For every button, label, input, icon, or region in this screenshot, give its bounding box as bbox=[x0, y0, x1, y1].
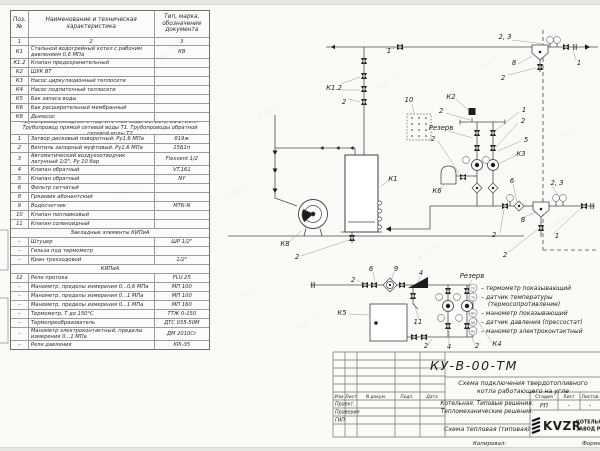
flow-arrow-icon bbox=[273, 151, 278, 156]
instrument-bubble-icon bbox=[554, 37, 561, 44]
control-cabinet-icon bbox=[469, 108, 476, 115]
diagram-label: 2 bbox=[521, 117, 525, 125]
valve-icon bbox=[460, 174, 466, 180]
sheet-frame bbox=[0, 230, 8, 343]
title-block-text: N докум. bbox=[366, 394, 386, 400]
flow-arrow-icon bbox=[386, 226, 391, 232]
watermark-text: kvzr.ru bbox=[87, 142, 111, 162]
diagram-label: Резерв bbox=[429, 124, 453, 132]
diagram-label: 1 bbox=[555, 232, 559, 240]
legend-bubble-code: ТЕ bbox=[470, 295, 475, 299]
diagram-label: 8 bbox=[512, 59, 517, 67]
title-block-text: КУ-В-00-ТМ bbox=[430, 358, 518, 373]
title-block-text: ГИП bbox=[335, 418, 345, 424]
title-block-text: Изм bbox=[335, 394, 345, 400]
watermark-text: kvzr.ru bbox=[167, 282, 191, 302]
diagram-label: 1 bbox=[577, 59, 581, 67]
title-block: КУ-В-00-ТМСхема подключения твердотоплив… bbox=[333, 352, 600, 447]
diagram-label: Резерв bbox=[460, 272, 484, 280]
title-block-text: Схема тепловая (типовая) bbox=[444, 426, 530, 433]
title-block-text: Стадия bbox=[535, 394, 553, 400]
diagram-label: 10 bbox=[405, 96, 414, 104]
legend-item-text: – термометр показывающий bbox=[481, 285, 571, 292]
diagram-label: 2 bbox=[342, 98, 346, 106]
legend-bubble-code: ДД bbox=[471, 320, 476, 324]
diagram-label: 1 bbox=[522, 106, 526, 114]
diagram-label: К4 bbox=[492, 340, 501, 348]
diagram-label: 2 bbox=[439, 107, 443, 115]
title-block-text: Подп. bbox=[400, 394, 413, 400]
diagram-label: 2 bbox=[351, 276, 355, 284]
diagram-label: К2 bbox=[446, 93, 455, 101]
title-block-text: Тепломеханические решения. bbox=[441, 409, 534, 415]
flow-arrow-icon bbox=[336, 146, 340, 150]
title-block-text: Котельная. Типовые решения. bbox=[440, 401, 533, 407]
title-block-text: Лист bbox=[344, 394, 357, 400]
legend-item-text2: (термосопротивление) bbox=[488, 301, 560, 308]
title-block-text: - bbox=[568, 403, 570, 410]
watermark-text: kvzr.ru bbox=[157, 42, 181, 62]
watermark-text: kvzr.ru bbox=[377, 72, 401, 92]
watermark-text: kvzr.ru bbox=[117, 182, 141, 202]
flow-arrow-icon bbox=[320, 146, 324, 150]
title-block-text: Дата bbox=[425, 394, 438, 400]
diagram-label: 2 bbox=[424, 342, 428, 350]
title-block-text: Проект. bbox=[335, 402, 355, 408]
title-block-text: котла работающего на угле bbox=[477, 387, 569, 395]
instrument-bubble-icon bbox=[438, 315, 445, 322]
instrument-bubble-icon bbox=[547, 37, 554, 44]
title-block-text: ЗАВОД Р bbox=[576, 427, 600, 433]
watermark-text: kvzr.ru bbox=[557, 122, 581, 142]
flow-arrow-icon bbox=[585, 44, 590, 50]
diagram-label: 2 bbox=[475, 342, 479, 350]
legend-bubble-code: МП bbox=[471, 311, 476, 315]
diagram-label: 2 bbox=[295, 253, 299, 261]
legend-item-text: – манометр электроконтактный bbox=[481, 328, 583, 335]
watermark-text: kvzr.ru bbox=[57, 62, 81, 82]
diagram-label: 9 bbox=[394, 265, 398, 273]
diagram-label: 6 bbox=[369, 265, 374, 273]
paper-edge-bottom bbox=[0, 447, 600, 451]
instrument-bubble-icon bbox=[560, 195, 567, 202]
diagram-label: 11 bbox=[414, 318, 423, 326]
kvzr-spring-icon bbox=[532, 418, 540, 433]
instrument-bubble-icon bbox=[507, 195, 514, 202]
schematic-drawing: kvzr.rukvzr.rukvzr.rukvzr.rukvzr.rukvzr.… bbox=[0, 0, 600, 450]
title-block-text: РП bbox=[540, 403, 549, 410]
diagram-label: 2, 3 bbox=[551, 179, 564, 187]
watermark-text: kvzr.ru bbox=[57, 302, 81, 322]
legend-bubble-code: МЭ bbox=[471, 329, 476, 333]
watermark-text: kvzr.ru bbox=[447, 162, 471, 182]
legend-item-text: – манометр показывающий bbox=[481, 310, 568, 317]
diagram-label: 6 bbox=[510, 177, 515, 185]
diagram-label: 2, 3 bbox=[499, 33, 512, 41]
instrument-bubble-icon bbox=[456, 315, 463, 322]
diagram-label: К1.2 bbox=[326, 84, 342, 92]
diagram-label: К1 bbox=[388, 175, 397, 183]
instrument-bubble-icon bbox=[436, 294, 443, 301]
watermark-text: kvzr.ru bbox=[257, 102, 281, 122]
diagram-label: 5 bbox=[524, 136, 528, 144]
drawing-sheet: Поз. №Наименование и техническая характе… bbox=[0, 0, 600, 450]
flow-arrow-icon bbox=[331, 45, 335, 49]
legend-item-text: – датчик давления (прессостат) bbox=[481, 319, 583, 326]
diagram-label: 2 bbox=[431, 135, 435, 143]
diagram-label: 2 bbox=[492, 231, 496, 239]
diagram-label: К6 bbox=[432, 187, 442, 195]
flow-arrow-icon bbox=[350, 146, 354, 150]
watermark-text: kvzr.ru bbox=[297, 312, 321, 332]
watermark-text: kvzr.ru bbox=[477, 52, 501, 72]
diagram-label: К3 bbox=[516, 150, 525, 158]
diagram-label: К8 bbox=[280, 240, 290, 248]
watermark-text: kvzr.ru bbox=[417, 242, 441, 262]
diagram-label: 4 bbox=[447, 343, 451, 351]
diagram-label: К5 bbox=[337, 309, 346, 317]
diagram-label: 2 bbox=[503, 251, 507, 259]
title-block-text: Листов bbox=[581, 394, 598, 400]
title-block-text: - bbox=[589, 403, 591, 410]
instrument-bubble-icon bbox=[454, 294, 461, 301]
title-block-text: Схема подключения твердотопливного bbox=[458, 380, 588, 387]
watermark-text: kvzr.ru bbox=[237, 282, 261, 302]
flow-arrow-icon bbox=[273, 169, 278, 174]
legend-item-text: – датчик температуры bbox=[481, 294, 553, 301]
diagram-label: 4 bbox=[419, 269, 423, 277]
instrument-bubble-icon bbox=[483, 157, 490, 164]
title-block-text: Лист bbox=[563, 394, 575, 400]
legend-bubble-code: ТП bbox=[470, 286, 475, 290]
instrument-legend: ТП– термометр показывающийТЕ– датчик тем… bbox=[469, 284, 583, 335]
flow-arrow-icon bbox=[273, 189, 278, 194]
instrument-bubble-icon bbox=[463, 157, 470, 164]
watermark-text: kvzr.ru bbox=[227, 182, 251, 202]
title-block-text: Проверил bbox=[335, 410, 360, 416]
diagram-label: 2 bbox=[501, 74, 505, 82]
diagram-label: 1 bbox=[387, 47, 391, 55]
diagram-label: 8 bbox=[521, 216, 526, 224]
